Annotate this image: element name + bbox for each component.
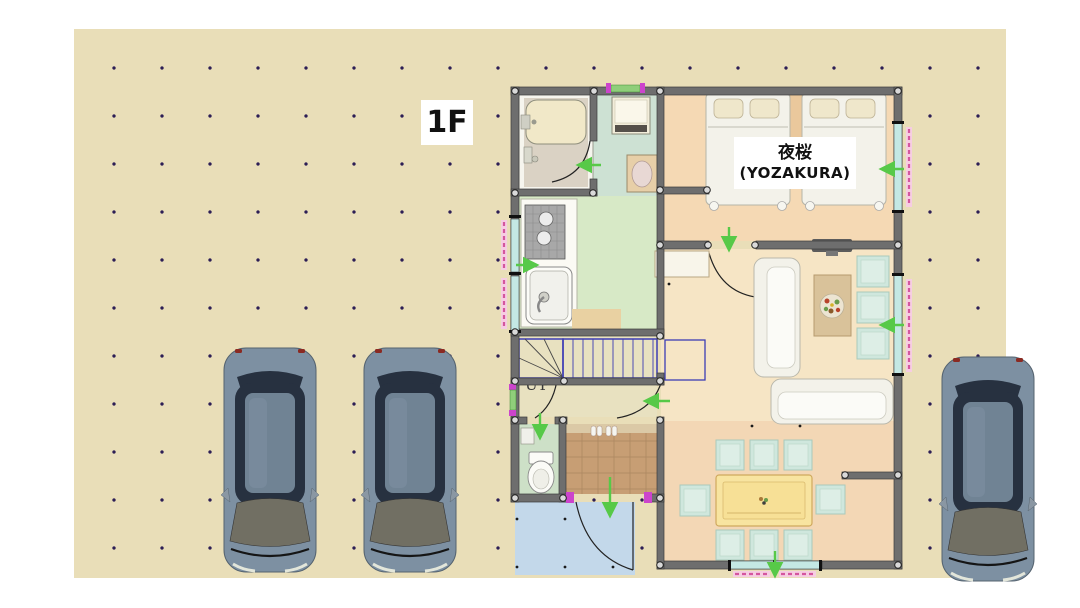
car-right (939, 357, 1037, 581)
entrance-door-marker-right (644, 492, 652, 503)
side-table (814, 275, 851, 336)
car-left (221, 348, 319, 572)
sofa-vertical (754, 258, 800, 377)
window-hall (510, 390, 516, 410)
floor-label: 1F (421, 100, 473, 145)
bedroom-label: 夜桜 (YOZAKURA) (734, 137, 856, 189)
bedroom-label-jp: 夜桜 (778, 143, 812, 164)
window-bedroom (894, 123, 902, 211)
floor-label-text: 1F (426, 105, 467, 140)
floor-plan-drawing: UP (74, 29, 1080, 608)
entrance-tile-floor (566, 424, 657, 494)
floor-plan-page: UP (0, 0, 1080, 608)
entrance-step (566, 424, 657, 433)
car-middle (361, 348, 459, 572)
toilet-shelf (521, 428, 534, 444)
dining-table (716, 475, 812, 526)
entrance-door-marker-left (566, 492, 574, 503)
kitchen-step (572, 309, 621, 329)
window-kitchen-2 (511, 276, 519, 331)
living-cushions (857, 256, 889, 359)
stair-floor (519, 336, 657, 378)
porch-floor (515, 502, 635, 575)
site-canvas: UP (74, 29, 1006, 578)
bath-faucet (521, 115, 530, 129)
sofa-horizontal (771, 379, 893, 424)
bathroom (519, 93, 593, 192)
shower-fixture (524, 147, 532, 163)
bedroom-label-en: (YOZAKURA) (740, 164, 851, 183)
window-washroom-top (611, 85, 640, 92)
